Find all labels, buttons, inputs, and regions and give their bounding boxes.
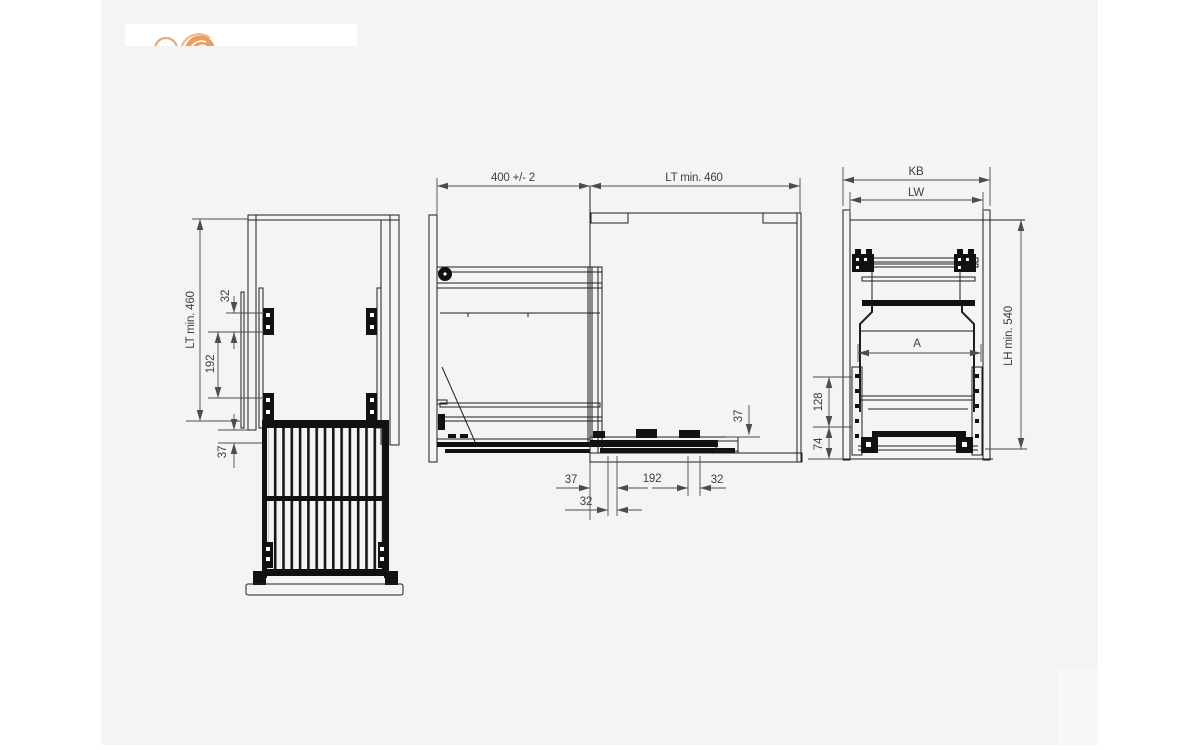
scan-artifact xyxy=(1058,667,1098,750)
plan-dim-depth-label: LT min. 460 xyxy=(185,291,197,348)
technical-drawing: LT min. 460 32 192 37 xyxy=(0,0,1200,750)
side-dim-door-depth-label: 400 +/- 2 xyxy=(491,172,535,184)
side-dim-32-bottom-label: 32 xyxy=(711,474,723,486)
side-view: 400 +/- 2 LT min. 460 37 37 192 32 32 xyxy=(429,172,802,520)
front-dim-128-label: 128 xyxy=(813,393,825,412)
front-dim-height-label: LH min. 540 xyxy=(1003,306,1015,366)
side-dim-32-offset-label: 32 xyxy=(580,496,592,508)
side-dim-cabinet-depth-label: LT min. 460 xyxy=(665,172,722,184)
brand-logo-partial xyxy=(155,34,215,50)
plan-view: LT min. 460 32 192 37 xyxy=(185,215,403,595)
front-dim-74-label: 74 xyxy=(813,437,825,450)
side-dim-37-height-label: 37 xyxy=(733,410,745,422)
plan-dim-32-label: 32 xyxy=(220,290,232,302)
side-dim-192-bottom-label: 192 xyxy=(643,473,662,485)
front-dim-basket-width-label: A xyxy=(913,338,921,350)
plan-dim-192-label: 192 xyxy=(205,355,217,374)
side-dim-37-bottom-label: 37 xyxy=(565,474,577,486)
front-dim-inner-width-label: LW xyxy=(908,187,924,199)
front-view: KB LW LH min. 540 A 128 74 xyxy=(808,166,1027,460)
front-dim-outer-width-label: KB xyxy=(909,166,924,178)
page: LT min. 460 32 192 37 xyxy=(0,0,1200,750)
plan-dim-37-label: 37 xyxy=(217,446,229,458)
